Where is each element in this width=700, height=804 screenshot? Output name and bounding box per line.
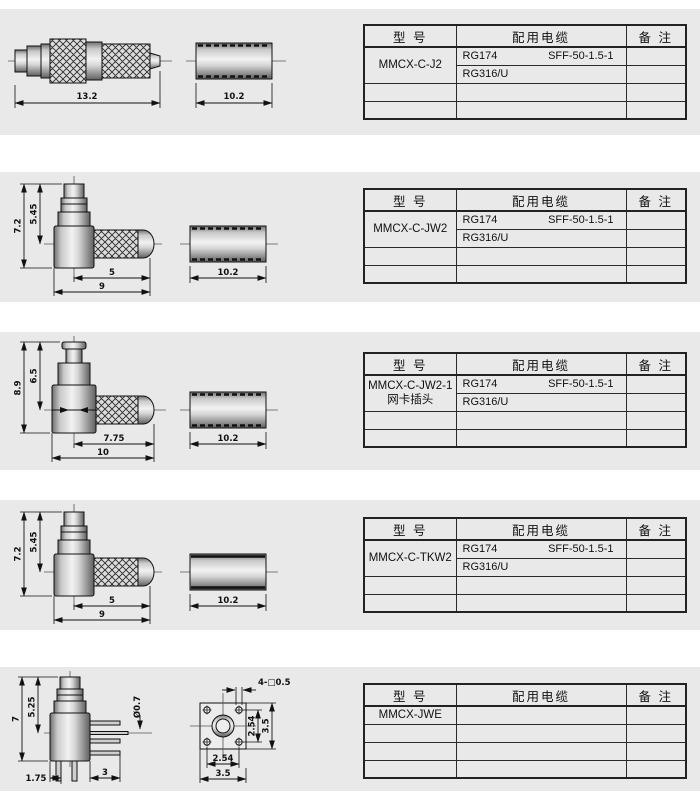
drawing-right-angle-connector-netcard: 8.9 6.5 7.75 10 10.2 xyxy=(0,332,360,470)
dim-mount-holes: 4-□0.5 xyxy=(258,678,291,688)
dim-sleeve-length: 10.2 xyxy=(224,92,245,102)
section-mmcx-jwe: Ø0.7 7 5.25 1.75 3 4-□0.5 xyxy=(0,667,700,791)
model-name: MMCX-C-TKW2 xyxy=(365,551,456,565)
cable-type-2: SFF-50-1.5-1 xyxy=(548,214,613,226)
cable-type-2: SFF-50-1.5-1 xyxy=(548,378,613,390)
cable-type-1: RG174 xyxy=(463,214,498,226)
note-cell xyxy=(626,393,686,411)
model-cell: MMCX-C-J2 xyxy=(364,47,456,83)
dim-sleeve-length: 10.2 xyxy=(218,434,239,444)
model-cell: MMCX-C-TKW2 xyxy=(364,540,456,576)
empty-cell xyxy=(626,83,686,101)
empty-cell xyxy=(456,83,626,101)
spec-table-mmcx-c-j2: 型 号 配用电缆 备 注 MMCX-C-J2 RG174 SFF-50-1.5-… xyxy=(363,24,687,120)
empty-cell xyxy=(364,411,456,429)
dim-sleeve-length: 10.2 xyxy=(218,268,239,278)
empty-cell xyxy=(364,724,456,742)
empty-cell xyxy=(456,101,626,119)
empty-cell xyxy=(456,594,626,612)
empty-cell xyxy=(456,265,626,283)
dim-body-length: 9 xyxy=(99,610,105,620)
empty-cell xyxy=(364,760,456,778)
dim-inner-height: 6.5 xyxy=(30,368,40,383)
dim-flange-height: 3.5 xyxy=(262,718,272,733)
dim-inner-height: 5.45 xyxy=(30,531,40,552)
dim-knurl-length: 5 xyxy=(109,596,115,606)
cable-type-1: RG174 xyxy=(463,543,498,555)
spec-table-mmcx-c-jw2: 型 号 配用电缆 备 注 MMCX-C-JW2 RG174 SFF-50-1.5… xyxy=(363,188,687,284)
empty-cell xyxy=(364,576,456,594)
cable-cell: RG316/U xyxy=(456,393,626,411)
dim-hole-pitch-b: 2.54 xyxy=(213,754,234,764)
col-header-note: 备 注 xyxy=(626,25,686,47)
note-cell xyxy=(626,375,686,393)
cable-cell: RG174 SFF-50-1.5-1 xyxy=(456,211,626,229)
dim-height: 7 xyxy=(12,716,22,722)
note-cell xyxy=(626,540,686,558)
note-cell xyxy=(626,558,686,576)
empty-cell xyxy=(364,265,456,283)
model-cell: MMCX-JWE xyxy=(364,706,456,724)
col-header-cable: 配用电缆 xyxy=(456,25,626,47)
model-cell: MMCX-C-JW2-1 网卡插头 xyxy=(364,375,456,411)
sleeve-group xyxy=(180,392,278,428)
empty-cell xyxy=(456,576,626,594)
connector-body-group xyxy=(52,342,154,433)
empty-cell xyxy=(626,742,686,760)
dim-knurl-length: 5 xyxy=(109,268,115,278)
empty-cell xyxy=(364,429,456,447)
col-header-model: 型 号 xyxy=(364,25,456,47)
dim-body-length: 10 xyxy=(97,448,109,458)
cable-cell: RG316/U xyxy=(456,229,626,247)
cable-cell: RG174 SFF-50-1.5-1 xyxy=(456,540,626,558)
empty-cell xyxy=(364,83,456,101)
drawing-right-angle-connector-tkw2: 7.2 5.45 5 9 10.2 xyxy=(0,500,360,630)
dim-body-length: 9 xyxy=(99,282,105,292)
cable-type-1: RG174 xyxy=(463,378,498,390)
empty-cell xyxy=(364,247,456,265)
note-cell xyxy=(626,706,686,724)
connector-body-group xyxy=(15,39,160,83)
col-header-model: 型 号 xyxy=(364,684,456,706)
cable-cell: RG174 SFF-50-1.5-1 xyxy=(456,47,626,65)
cable-type-2: SFF-50-1.5-1 xyxy=(548,543,613,555)
empty-cell xyxy=(626,594,686,612)
spec-table-mmcx-jwe: 型 号 配用电缆 备 注 MMCX-JWE xyxy=(363,683,687,779)
empty-cell xyxy=(456,742,626,760)
cable-cell xyxy=(456,706,626,724)
empty-cell xyxy=(626,576,686,594)
dim-inner-height: 5.25 xyxy=(28,696,38,717)
empty-cell xyxy=(364,101,456,119)
dim-leg-length: 3 xyxy=(102,768,108,778)
cable-cell: RG316/U xyxy=(456,558,626,576)
empty-cell xyxy=(456,411,626,429)
drawing-pcb-connector: Ø0.7 7 5.25 1.75 3 4-□0.5 xyxy=(0,667,360,791)
empty-cell xyxy=(364,594,456,612)
model-name: MMCX-C-J2 xyxy=(365,58,456,72)
sleeve-group xyxy=(180,554,278,590)
drawing-right-angle-connector: 7.2 5.45 5 9 10.2 xyxy=(0,172,360,302)
dim-height: 7.2 xyxy=(14,546,24,561)
col-header-cable: 配用电缆 xyxy=(456,518,626,540)
drawing-straight-connector: 13.2 10.2 xyxy=(0,9,360,135)
connector-body-group xyxy=(54,512,154,596)
section-mmcx-c-jw2-1: 8.9 6.5 7.75 10 10.2 型 号 配用电缆 备 注 MMCX- xyxy=(0,332,700,470)
dim-pin-diameter: Ø0.7 xyxy=(132,696,143,718)
col-header-note: 备 注 xyxy=(626,189,686,211)
empty-cell xyxy=(626,247,686,265)
col-header-model: 型 号 xyxy=(364,518,456,540)
col-header-model: 型 号 xyxy=(364,189,456,211)
empty-cell xyxy=(626,411,686,429)
empty-cell xyxy=(456,429,626,447)
empty-cell xyxy=(626,265,686,283)
model-name: MMCX-C-JW2-1 xyxy=(365,379,456,393)
empty-cell xyxy=(364,742,456,760)
cable-type-1: RG174 xyxy=(463,50,498,62)
empty-cell xyxy=(456,247,626,265)
col-header-cable: 配用电缆 xyxy=(456,353,626,375)
dim-inner-height: 5.45 xyxy=(30,203,40,224)
model-cell: MMCX-C-JW2 xyxy=(364,211,456,247)
empty-cell xyxy=(626,101,686,119)
cable-cell: RG174 SFF-50-1.5-1 xyxy=(456,375,626,393)
spec-table-mmcx-c-tkw2: 型 号 配用电缆 备 注 MMCX-C-TKW2 RG174 SFF-50-1.… xyxy=(363,517,687,613)
dim-knurl-length: 7.75 xyxy=(104,434,125,444)
dim-hole-pitch-v: 2.54 xyxy=(248,715,258,736)
connector-body-group xyxy=(50,677,128,781)
model-name: MMCX-C-JW2 xyxy=(365,222,456,236)
empty-cell xyxy=(626,724,686,742)
cable-cell: RG316/U xyxy=(456,65,626,83)
section-mmcx-c-tkw2: 7.2 5.45 5 9 10.2 型 号 配用电缆 备 注 MMCX-C-T xyxy=(0,500,700,630)
empty-cell xyxy=(626,429,686,447)
col-header-note: 备 注 xyxy=(626,684,686,706)
empty-cell xyxy=(456,760,626,778)
col-header-cable: 配用电缆 xyxy=(456,684,626,706)
col-header-note: 备 注 xyxy=(626,353,686,375)
section-mmcx-c-j2: 13.2 10.2 型 号 配用电缆 备 注 MMCX-C-J2 RG174 xyxy=(0,9,700,135)
dim-body-length: 13.2 xyxy=(77,92,98,102)
connector-body-group xyxy=(54,184,154,268)
dim-leg-offset: 1.75 xyxy=(26,774,47,784)
section-mmcx-c-jw2: 7.2 5.45 5 9 10.2 型 号 配用电缆 备 注 MMCX-C-J xyxy=(0,172,700,302)
empty-cell xyxy=(456,724,626,742)
sleeve-group xyxy=(180,226,278,262)
col-header-model: 型 号 xyxy=(364,353,456,375)
empty-cell xyxy=(626,760,686,778)
note-cell xyxy=(626,211,686,229)
col-header-cable: 配用电缆 xyxy=(456,189,626,211)
cable-type-2: SFF-50-1.5-1 xyxy=(548,50,613,62)
note-cell xyxy=(626,47,686,65)
dim-flange-width: 3.5 xyxy=(215,769,230,779)
dim-sleeve-length: 10.2 xyxy=(218,596,239,606)
dim-height: 7.2 xyxy=(14,218,24,233)
sleeve-group xyxy=(186,43,286,79)
col-header-note: 备 注 xyxy=(626,518,686,540)
model-subtitle: 网卡插头 xyxy=(365,393,456,407)
spec-table-mmcx-c-jw2-1: 型 号 配用电缆 备 注 MMCX-C-JW2-1 网卡插头 RG174 SFF… xyxy=(363,352,687,448)
dim-height: 8.9 xyxy=(14,380,24,395)
note-cell xyxy=(626,65,686,83)
note-cell xyxy=(626,229,686,247)
